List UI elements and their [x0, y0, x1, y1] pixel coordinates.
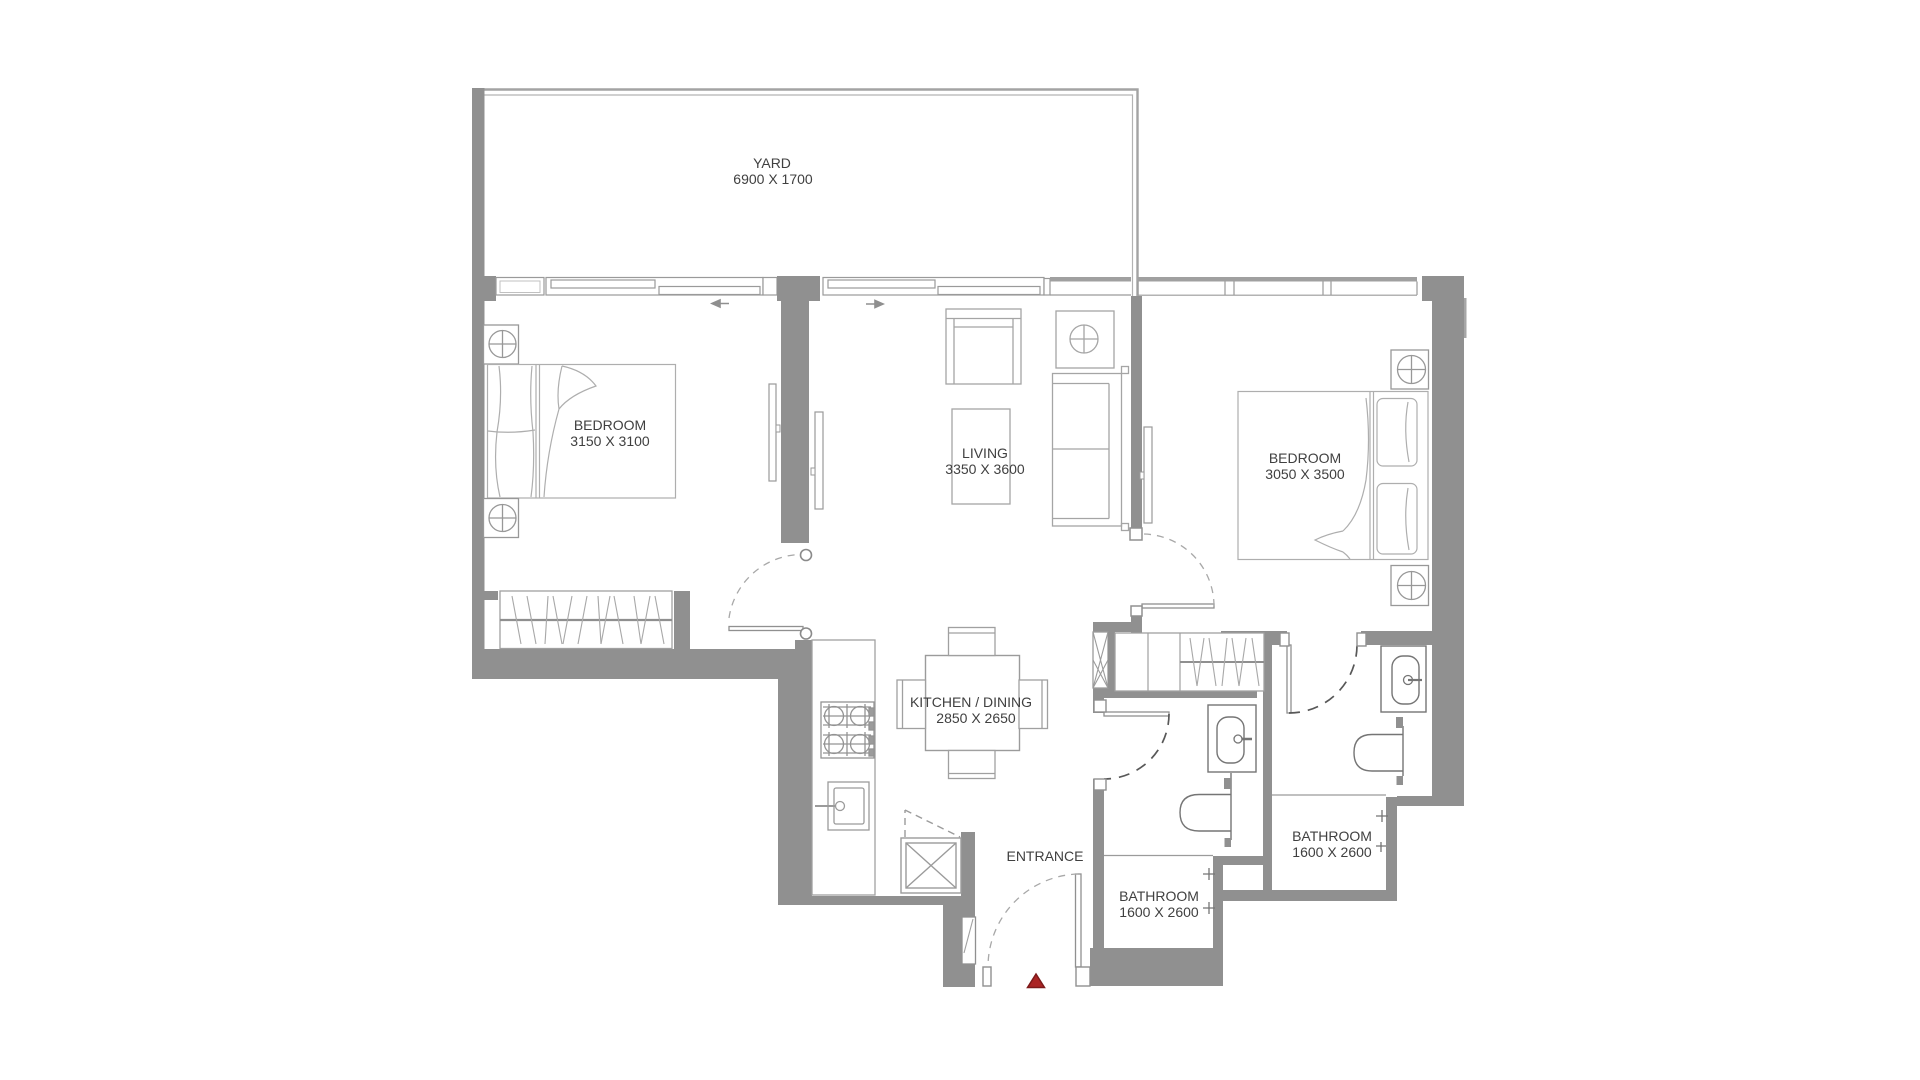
svg-text:LIVING: LIVING: [962, 445, 1008, 461]
svg-text:YARD: YARD: [753, 155, 791, 171]
svg-text:2850 X 2650: 2850 X 2650: [936, 710, 1016, 726]
svg-text:1600 X 2600: 1600 X 2600: [1119, 904, 1199, 920]
svg-text:ENTRANCE: ENTRANCE: [1006, 848, 1083, 864]
svg-text:KITCHEN / DINING: KITCHEN / DINING: [910, 694, 1032, 710]
svg-text:1600 X 2600: 1600 X 2600: [1292, 844, 1372, 860]
svg-text:3150 X 3100: 3150 X 3100: [570, 433, 650, 449]
svg-text:BATHROOM: BATHROOM: [1119, 888, 1199, 904]
svg-text:6900 X 1700: 6900 X 1700: [733, 171, 813, 187]
svg-text:BATHROOM: BATHROOM: [1292, 828, 1372, 844]
svg-text:BEDROOM: BEDROOM: [574, 417, 646, 433]
svg-text:3350 X 3600: 3350 X 3600: [945, 461, 1025, 477]
svg-text:3050 X 3500: 3050 X 3500: [1265, 466, 1345, 482]
svg-text:BEDROOM: BEDROOM: [1269, 450, 1341, 466]
